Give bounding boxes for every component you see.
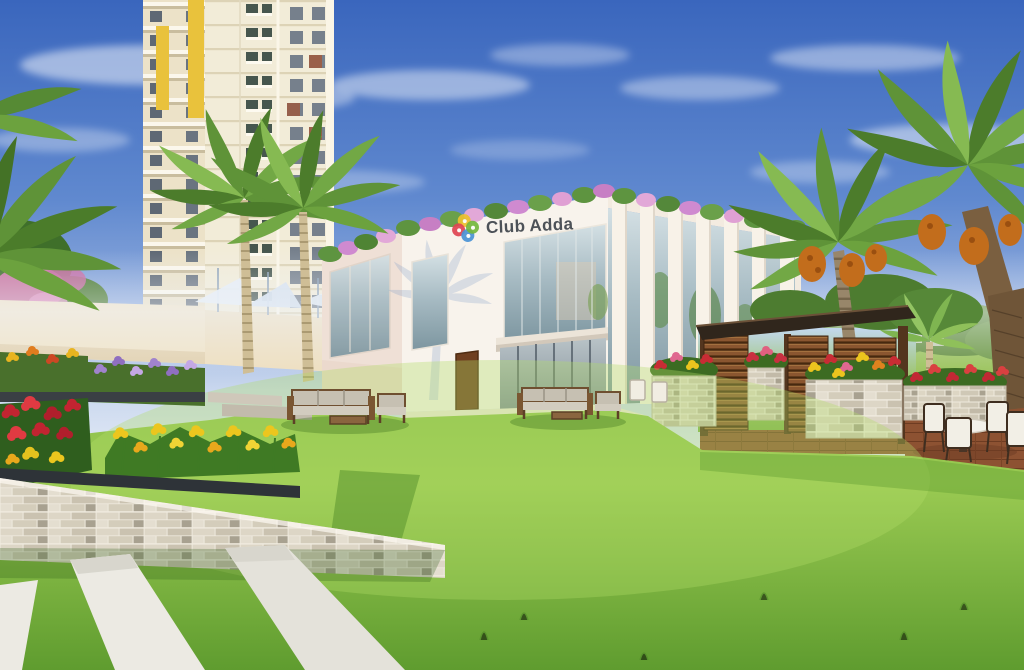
sofa-set-left bbox=[281, 390, 409, 434]
logo-word-adda: Adda bbox=[529, 214, 574, 236]
club-adda-logo: Club Adda bbox=[451, 209, 574, 243]
logo-flower-icon bbox=[451, 213, 479, 243]
logo-petal-green bbox=[466, 220, 480, 234]
logo-wordmark: Club Adda bbox=[486, 214, 574, 238]
logo-word-club: Club bbox=[486, 216, 526, 238]
clubhouse-exterior-rendering: Club Adda bbox=[0, 0, 1024, 670]
scene-illustration bbox=[0, 0, 1024, 670]
